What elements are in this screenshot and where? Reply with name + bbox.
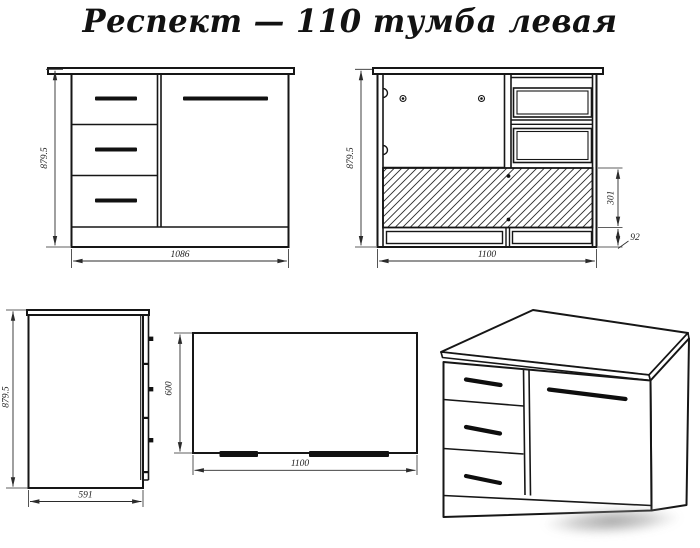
- drawer-handle-top: [220, 451, 259, 457]
- back-height-label: 879.5: [346, 147, 356, 169]
- handle-profile: [149, 438, 154, 442]
- perspective-view: [441, 310, 689, 539]
- drawer-box-2-inner: [517, 132, 588, 160]
- plinth-right: [513, 232, 592, 244]
- leader-line: [618, 241, 629, 249]
- screw-holes: [400, 96, 485, 102]
- front-gap-mark: [144, 363, 148, 365]
- door-handle-top: [309, 451, 389, 457]
- drawer-box-2: [514, 129, 592, 163]
- plinth-divider: [506, 228, 510, 248]
- back-panel-height-label: 301: [607, 191, 617, 206]
- technical-drawing-canvas: 879.5 1086: [0, 0, 700, 548]
- side-view: 879.5 591: [2, 310, 154, 507]
- back-panel-screw: [507, 218, 511, 222]
- divider-panel: [158, 74, 162, 227]
- front-gap-mark: [144, 471, 148, 473]
- top-view: 600 1100: [165, 333, 418, 475]
- back-view: 879.5 1100 301 92: [346, 68, 640, 268]
- front-gap-mark: [144, 417, 148, 419]
- handle-profile: [149, 337, 154, 341]
- drawer-box-1: [514, 88, 592, 117]
- front-height-label: 879.5: [40, 147, 50, 169]
- handle-profile: [149, 387, 154, 391]
- front-view: 879.5 1086: [40, 68, 294, 268]
- drawer-handle: [95, 148, 137, 152]
- top-depth-label: 600: [165, 381, 175, 396]
- countertop-outline: [193, 333, 417, 453]
- drawer-handle: [95, 199, 137, 203]
- door-handle: [183, 97, 268, 101]
- drawer-box-1-inner: [517, 91, 588, 114]
- plinth-height-label: 92: [630, 233, 640, 243]
- plinth-left: [387, 232, 503, 244]
- drawing-sheet: Респект — 110 тумба левая: [0, 0, 700, 548]
- back-panel-screw: [507, 174, 511, 178]
- front-face: [444, 362, 652, 517]
- extension-lines: [6, 310, 143, 507]
- drawer-handle: [95, 97, 137, 101]
- back-width-label: 1100: [478, 250, 497, 260]
- front-width-label: 1086: [171, 250, 190, 260]
- side-depth-label: 591: [78, 491, 92, 501]
- door-back-panel: [383, 74, 511, 168]
- side-height-label: 879.5: [2, 386, 12, 408]
- back-panel-hatched: [383, 168, 593, 228]
- side-panel-outline: [29, 315, 144, 488]
- top-width-label: 1100: [291, 459, 310, 469]
